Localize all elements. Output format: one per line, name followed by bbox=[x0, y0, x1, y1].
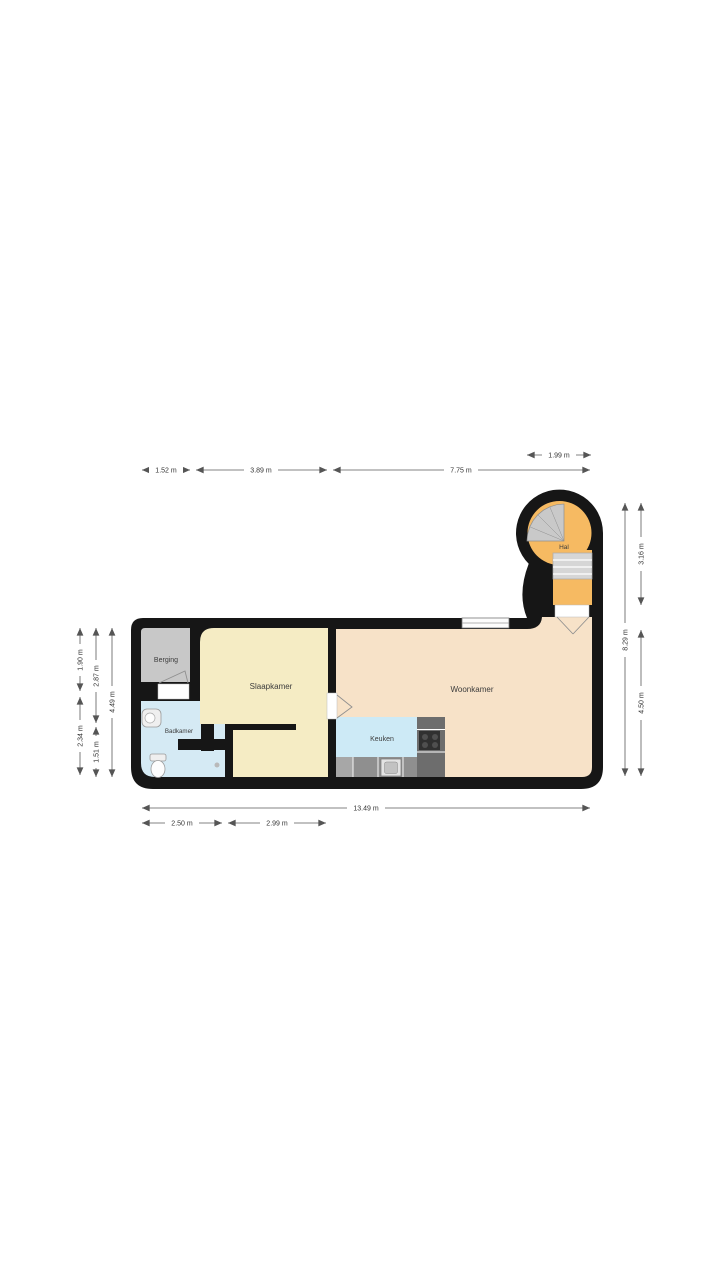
dimension-label-slaapkamer-width: 3.89 m bbox=[244, 465, 278, 475]
toilet-tank bbox=[150, 754, 166, 761]
dimension-label-slaapkamer-lower-width: 2.99 m bbox=[260, 818, 294, 828]
svg-text:2.34 m: 2.34 m bbox=[78, 725, 85, 747]
room-berging bbox=[141, 628, 190, 682]
staircase-icon bbox=[553, 553, 592, 579]
dimension-label-slaapkamer-height: 2.87 m bbox=[91, 660, 101, 692]
burner-icon bbox=[422, 742, 428, 748]
dimension-label-badkamer-height: 2.34 m bbox=[75, 720, 85, 752]
svg-text:1.52 m: 1.52 m bbox=[155, 468, 177, 475]
room-label-keuken: Keuken bbox=[370, 736, 394, 743]
kitchen-sink-basin bbox=[385, 762, 398, 774]
wall-stub-horizontal bbox=[178, 739, 225, 750]
dimension-label-badkamer-width: 2.50 m bbox=[165, 818, 199, 828]
dimension-label-hal-width: 1.99 m bbox=[542, 450, 576, 460]
burner-icon bbox=[432, 734, 438, 740]
burner-icon bbox=[432, 742, 438, 748]
room-label-badkamer: Badkamer bbox=[165, 728, 193, 735]
svg-text:3.89 m: 3.89 m bbox=[250, 468, 272, 475]
floorplan-page: Berging Slaapkamer Woonkamer Badkamer Ke… bbox=[0, 0, 720, 1280]
svg-text:2.99 m: 2.99 m bbox=[266, 821, 288, 828]
svg-text:4.49 m: 4.49 m bbox=[110, 691, 117, 713]
svg-text:3.16 m: 3.16 m bbox=[639, 543, 646, 565]
svg-text:1.51 m: 1.51 m bbox=[94, 741, 101, 763]
dimension-label-woonkamer-height: 4.50 m bbox=[636, 686, 646, 720]
svg-text:1.90 m: 1.90 m bbox=[78, 649, 85, 671]
dimension-label-slaapkamer-lower-height: 1.51 m bbox=[91, 736, 101, 768]
door-opening bbox=[327, 693, 337, 719]
dimension-label-hal-height: 3.16 m bbox=[636, 537, 646, 571]
dimension-label-left-total: 4.49 m bbox=[107, 686, 117, 718]
room-label-woonkamer: Woonkamer bbox=[451, 685, 494, 694]
floorplan-canvas: Berging Slaapkamer Woonkamer Badkamer Ke… bbox=[0, 0, 720, 1280]
svg-text:2.87 m: 2.87 m bbox=[94, 665, 101, 687]
burner-icon bbox=[422, 734, 428, 740]
door-opening bbox=[555, 605, 589, 617]
dimension-label-woonkamer-width: 7.75 m bbox=[444, 465, 478, 475]
svg-text:2.50 m: 2.50 m bbox=[171, 821, 193, 828]
svg-text:8.29 m: 8.29 m bbox=[623, 629, 630, 651]
room-label-berging: Berging bbox=[154, 657, 178, 664]
door-opening bbox=[158, 684, 189, 699]
shower-drain-icon bbox=[215, 763, 220, 768]
dimension-label-height-total: 8.29 m bbox=[620, 623, 630, 657]
svg-text:1.99 m: 1.99 m bbox=[548, 453, 570, 460]
room-label-hal: Hal bbox=[559, 544, 569, 551]
svg-text:13.49 m: 13.49 m bbox=[353, 806, 378, 813]
dimension-label-width-total: 13.49 m bbox=[347, 803, 385, 813]
kitchen-cabinet bbox=[336, 757, 353, 777]
toilet-icon bbox=[151, 761, 165, 778]
dimension-label-berging-width: 1.52 m bbox=[149, 465, 183, 475]
svg-text:7.75 m: 7.75 m bbox=[450, 468, 472, 475]
sink-bowl bbox=[145, 713, 155, 723]
svg-text:4.50 m: 4.50 m bbox=[639, 692, 646, 714]
room-label-slaapkamer: Slaapkamer bbox=[250, 682, 293, 691]
dimension-label-berging-height: 1.90 m bbox=[75, 644, 85, 676]
